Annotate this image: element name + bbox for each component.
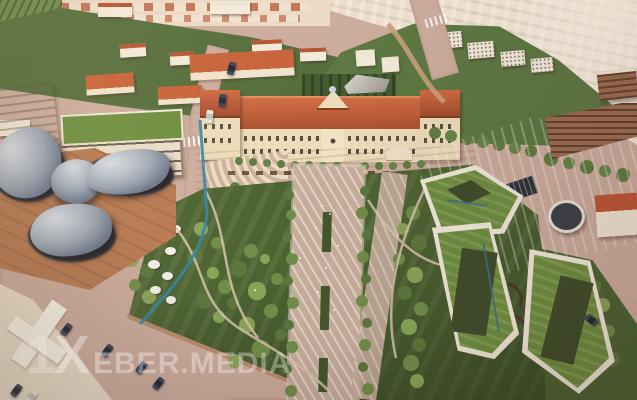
red-roof-building-east xyxy=(595,193,637,238)
round-pavilion xyxy=(548,200,585,233)
watermark-logo-x: X xyxy=(54,328,90,382)
aerial-render-scene: 1 X EBER.MEDIA xyxy=(0,0,637,400)
terracotta-louver-building xyxy=(597,68,637,101)
car xyxy=(205,110,213,124)
watermark-text: EBER.MEDIA xyxy=(93,349,291,379)
watermark: 1 X EBER.MEDIA xyxy=(26,328,291,382)
watermark-logo-prefix: 1 xyxy=(26,328,52,382)
hill-road xyxy=(388,24,444,102)
